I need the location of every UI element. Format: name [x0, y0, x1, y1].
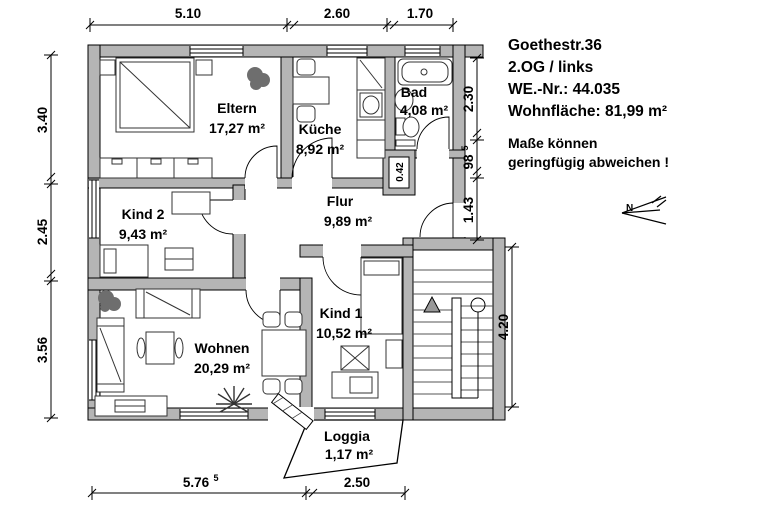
dining-table: [262, 312, 306, 394]
sofa-top: [136, 289, 200, 318]
room-label-flur: Flur: [327, 193, 354, 209]
chair-kind1: [341, 346, 369, 370]
shaft-dim: 0.42: [395, 162, 406, 182]
nightstand-left: [100, 60, 115, 75]
room-label-kueche: Küche: [299, 121, 342, 137]
dim-top-3: 1.70: [407, 6, 433, 21]
room-label-eltern: Eltern: [217, 100, 257, 116]
room-area-loggia: 1,17 m²: [325, 446, 374, 462]
kitchen-counter: [357, 58, 385, 158]
dim-bottom-2: 2.50: [344, 475, 370, 490]
wall-kueche-bad: [385, 57, 395, 158]
room-area-eltern: 17,27 m²: [209, 120, 265, 136]
window-wohnen-bottom: [180, 409, 248, 419]
disclaimer-line1: Maße können: [508, 135, 597, 151]
toilet: [396, 117, 419, 146]
kitchen-chair-bottom: [297, 106, 315, 122]
stair-direction-arrow-icon: [424, 297, 440, 312]
room-area-kind2: 9,43 m²: [119, 226, 168, 242]
table-kind2: [165, 248, 193, 270]
dim-top-1: 5.10: [175, 6, 201, 21]
dim-right-stair: 4.20: [496, 314, 511, 340]
room-area-wohnen: 20,29 m²: [194, 360, 250, 376]
living-area-text: Wohnfläche: 81,99 m²: [508, 103, 667, 120]
room-area-flur: 9,89 m²: [324, 213, 373, 229]
unit-number-text: WE.-Nr.: 44.035: [508, 81, 620, 98]
dim-bottom-1-sup: 5: [213, 473, 218, 483]
dim-right-2-sup: 5: [460, 145, 470, 150]
north-arrow-icon: N: [622, 196, 666, 224]
shelf-kind1: [386, 340, 402, 368]
room-area-bad: 4,08 m²: [400, 102, 449, 118]
tv-board: [95, 396, 167, 416]
window-kind1-bottom: [325, 409, 375, 419]
door-kind1: [323, 257, 361, 295]
dim-right-1: 2.30: [461, 86, 476, 112]
north-label: N: [626, 203, 633, 214]
room-area-kind1: 10,52 m²: [316, 325, 372, 341]
dim-right-2: 98: [461, 154, 476, 170]
wall-stair-top: [413, 238, 505, 250]
stair-post: [471, 298, 485, 312]
window-kueche: [327, 46, 367, 56]
dresser-eltern: [100, 158, 212, 178]
door-entrance: [420, 203, 453, 237]
window-kind2: [89, 180, 99, 238]
floor-text: 2.OG / links: [508, 59, 593, 76]
kitchen-chair-top: [297, 59, 315, 75]
room-label-loggia: Loggia: [324, 428, 370, 444]
desk-kind2: [172, 192, 210, 214]
bed-kind2: [100, 245, 148, 277]
dim-right-3: 1.43: [461, 196, 476, 223]
staircase: [413, 270, 493, 398]
nightstand-right: [196, 60, 212, 75]
room-label-kind1: Kind 1: [320, 305, 363, 321]
room-area-kueche: 8,92 m²: [296, 141, 345, 157]
dim-bottom-1: 5.76: [183, 475, 210, 490]
plant-icon: [98, 290, 121, 312]
window-eltern: [190, 46, 243, 56]
dim-left-3: 3.56: [35, 336, 50, 363]
window-bad: [405, 46, 440, 56]
dim-left-2: 2.45: [35, 218, 50, 245]
wall-kind1-right: [403, 238, 413, 420]
door-eltern: [245, 146, 277, 178]
address-text: Goethestr.36: [508, 37, 602, 54]
room-label-kind2: Kind 2: [122, 206, 165, 222]
floorplan-page: Eltern 17,27 m² Küche 8,92 m² Bad 4,08 m…: [0, 0, 768, 515]
door-bad: [417, 117, 449, 149]
coffee-table: [137, 332, 183, 364]
title-block: Goethestr.36 2.OG / links WE.-Nr.: 44.03…: [508, 37, 669, 170]
desk-kind1: [332, 372, 378, 398]
room-label-bad: Bad: [401, 84, 427, 100]
floorplan-drawing: Eltern 17,27 m² Küche 8,92 m² Bad 4,08 m…: [0, 0, 768, 515]
sofa-left: [97, 318, 124, 392]
plant-icon: [247, 67, 270, 90]
disclaimer-line2: geringfügig abweichen !: [508, 154, 669, 170]
bed-kind1: [361, 258, 402, 334]
kitchen-table: [293, 77, 329, 104]
bathtub: [398, 59, 452, 85]
wall-eltern-kueche: [281, 57, 293, 183]
room-label-wohnen: Wohnen: [195, 340, 250, 356]
dim-left-1: 3.40: [35, 107, 50, 133]
dim-top-2: 2.60: [324, 6, 350, 21]
